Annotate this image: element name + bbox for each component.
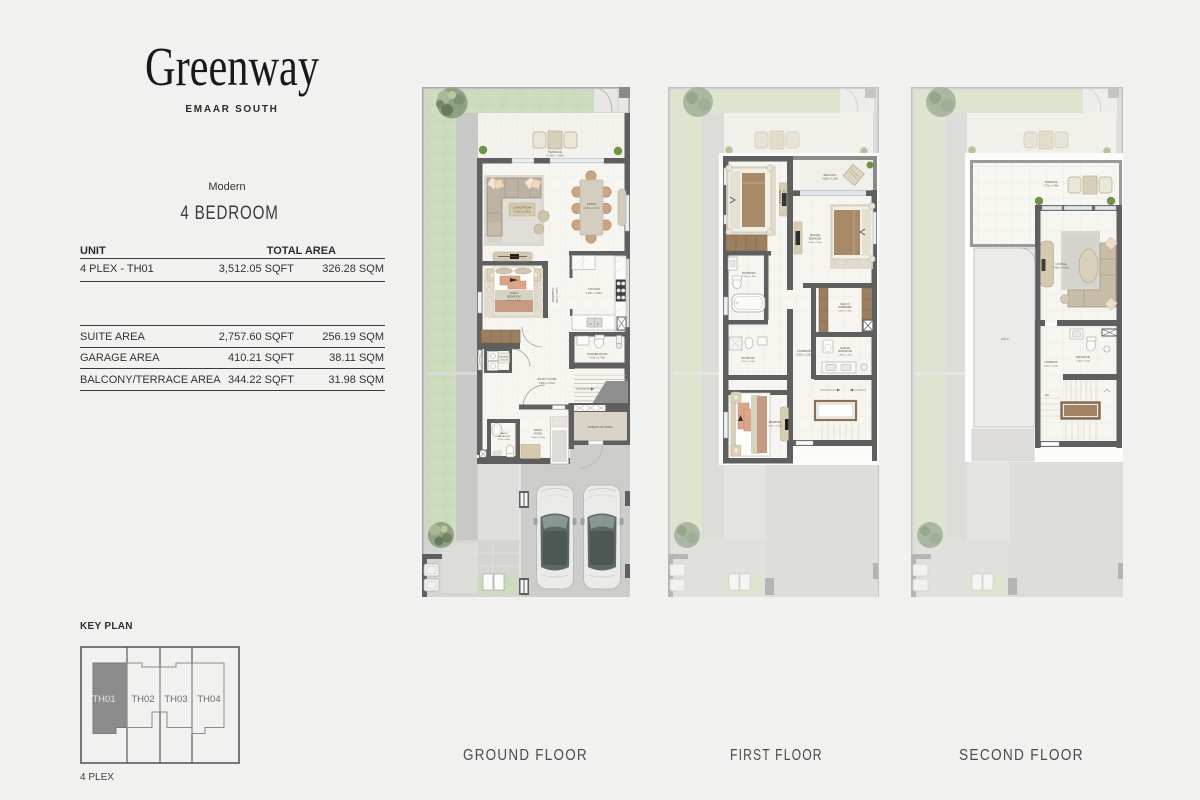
svg-text:4.30m x 3.70m: 4.30m x 3.70m	[808, 242, 822, 244]
svg-text:0.90x1.00: 0.90x1.00	[500, 360, 508, 362]
svg-text:BEDROOM: BEDROOM	[507, 295, 520, 299]
svg-text:1.98m x 1.73m: 1.98m x 1.73m	[838, 354, 852, 356]
svg-text:BATHROOM: BATHROOM	[742, 272, 755, 275]
svg-text:BEDROOM: BEDROOM	[809, 237, 821, 240]
svg-text:WASHROOM: WASHROOM	[838, 350, 852, 353]
svg-text:4.28m x 1.28m: 4.28m x 1.28m	[822, 178, 838, 181]
svg-text:2.07m x 1.75m: 2.07m x 1.75m	[589, 357, 605, 360]
svg-text:4.10m x 1.10m: 4.10m x 1.10m	[555, 287, 558, 303]
svg-text:2.60m x 2.50m: 2.60m x 2.50m	[539, 382, 556, 385]
svg-text:4.04m x 3.30m: 4.04m x 3.30m	[768, 425, 782, 427]
svg-text:TH04: TH04	[197, 694, 220, 705]
svg-text:BATHROOM: BATHROOM	[1076, 356, 1090, 359]
svg-text:2.18m x 2.10m: 2.18m x 2.10m	[1076, 360, 1091, 362]
svg-text:2.27m x 1.70m: 2.27m x 1.70m	[741, 361, 755, 363]
svg-text:M.E.P: M.E.P	[1001, 337, 1009, 341]
svg-text:BEDROOM: BEDROOM	[769, 421, 781, 424]
svg-text:4.70m x 3.70m: 4.70m x 3.70m	[514, 211, 531, 214]
svg-text:TERRACE: TERRACE	[1045, 180, 1058, 184]
svg-text:WARDROBE: WARDROBE	[838, 306, 852, 309]
svg-text:ROOM: ROOM	[534, 432, 542, 435]
svg-text:3.52m x 1.10m: 3.52m x 1.10m	[1044, 365, 1059, 367]
svg-text:1.87m x 1.48m: 1.87m x 1.48m	[498, 439, 511, 441]
svg-text:3.15m x 2.95m: 3.15m x 2.95m	[586, 292, 603, 295]
svg-text:BEDROOM: BEDROOM	[778, 190, 782, 203]
svg-text:3.70m x 1.90m: 3.70m x 1.90m	[742, 276, 756, 278]
svg-text:TH01: TH01	[92, 694, 115, 705]
svg-text:BATHROOM: BATHROOM	[741, 357, 754, 360]
svg-text:ENTRY FOYER: ENTRY FOYER	[537, 377, 556, 381]
svg-text:2.97m x 2.73m: 2.97m x 2.73m	[838, 310, 852, 312]
svg-text:4.25m x 4.17m: 4.25m x 4.17m	[583, 207, 600, 210]
svg-text:2.50m x 2.26m: 2.50m x 2.26m	[531, 437, 546, 439]
svg-text:MAID'S: MAID'S	[500, 432, 508, 435]
svg-text:BALCONY: BALCONY	[824, 173, 837, 177]
svg-text:LIVING ROOM: LIVING ROOM	[513, 206, 532, 210]
svg-text:GUEST: GUEST	[510, 291, 519, 295]
svg-text:TH02: TH02	[131, 694, 154, 705]
svg-text:TH03: TH03	[164, 694, 187, 705]
svg-text:BATHROOM: BATHROOM	[498, 435, 511, 438]
svg-text:DINING: DINING	[587, 202, 596, 206]
svg-text:CORRIDOR: CORRIDOR	[1044, 361, 1057, 364]
svg-text:STORE/PLANT ROOM: STORE/PLANT ROOM	[588, 426, 613, 429]
svg-text:4.50m x 3.60m: 4.50m x 3.60m	[507, 300, 522, 302]
svg-text:MASTER: MASTER	[840, 347, 850, 350]
svg-text:5.70M x 1.90M: 5.70M x 1.90M	[546, 154, 563, 158]
svg-text:KITCHEN: KITCHEN	[588, 287, 600, 291]
svg-text:POWDER ROOM: POWDER ROOM	[587, 352, 607, 356]
svg-text:CORRIDOR: CORRIDOR	[797, 349, 811, 353]
svg-text:4.66m x 4.20m: 4.66m x 4.20m	[1053, 267, 1069, 270]
svg-text:4.55m x 1.35m: 4.55m x 1.35m	[796, 355, 811, 357]
svg-text:LOUNGE: LOUNGE	[1055, 262, 1067, 266]
svg-text:LAUNDRY: LAUNDRY	[499, 356, 509, 359]
svg-text:CORRIDOR: CORRIDOR	[551, 288, 555, 303]
svg-text:4.70m x 3.70m: 4.70m x 3.70m	[782, 189, 784, 204]
svg-text:WALK IN: WALK IN	[840, 303, 850, 306]
svg-text:TERRACE: TERRACE	[548, 150, 562, 154]
svg-text:DN: DN	[1045, 393, 1049, 397]
svg-text:7.72m x 1.98m: 7.72m x 1.98m	[1043, 185, 1059, 188]
